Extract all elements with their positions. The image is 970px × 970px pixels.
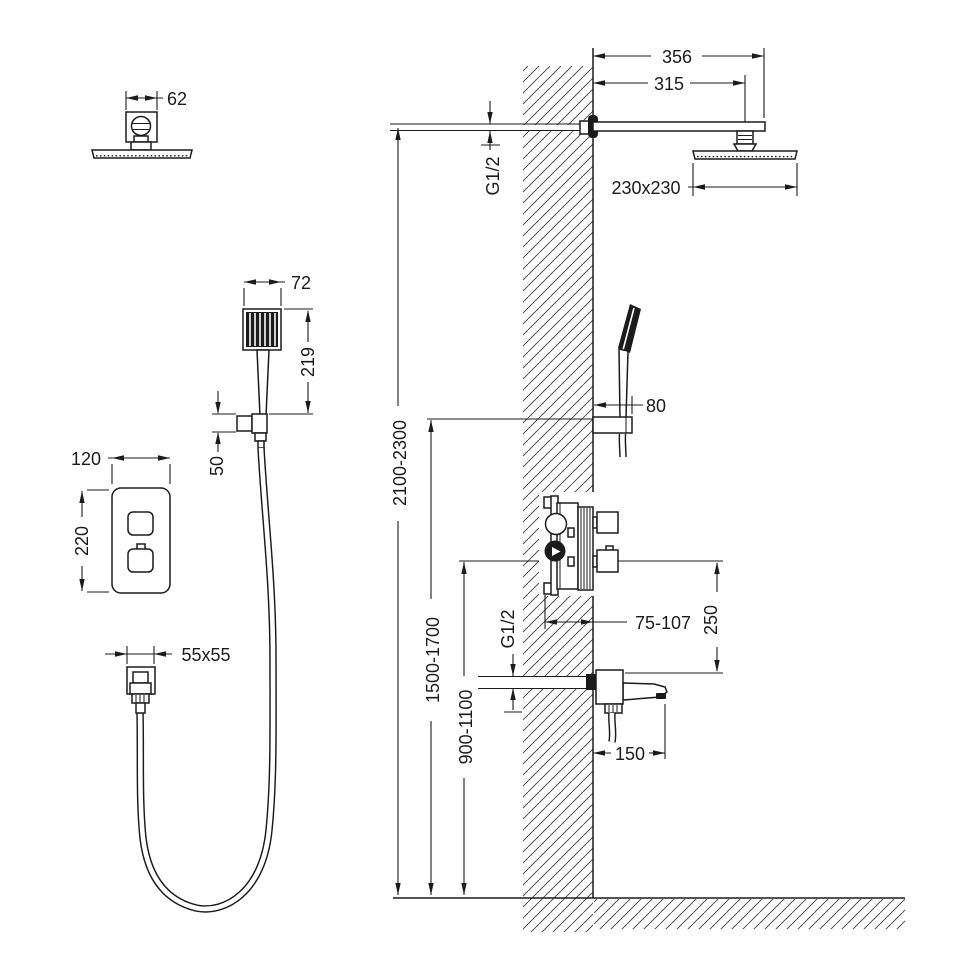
- installation-diagram: 2100-2300 1500-1700 900-1100 G1/2: [0, 0, 970, 970]
- handshower-length-label: 219: [298, 347, 318, 377]
- control-panel: [112, 488, 170, 593]
- dim-panel-height: 220: [72, 490, 109, 592]
- hand-shower-wall: [593, 304, 641, 457]
- mixer-depth-label: 75-107: [635, 613, 691, 633]
- outlet-size-label: 55x55: [181, 645, 230, 665]
- hand-shower-front: [237, 309, 281, 448]
- shower-arm: [580, 115, 765, 151]
- tub-spout: [586, 670, 667, 742]
- thread-spout-label: G1/2: [498, 609, 518, 648]
- mixer-handle-top: [597, 512, 618, 533]
- height-head-label: 2100-2300: [390, 420, 410, 506]
- overhead-shower-front: [92, 112, 192, 158]
- dim-head-size: 230x230: [611, 163, 797, 198]
- dim-handshower-width: 72: [244, 273, 311, 306]
- arm-center-label: 315: [654, 74, 684, 94]
- mixer-cartridge: [546, 514, 567, 535]
- dim-spout-reach: 150: [593, 704, 665, 764]
- spout-reach-label: 150: [615, 744, 645, 764]
- dim-arm-center: 315: [593, 74, 745, 122]
- mixer-valve: [539, 492, 618, 596]
- dim-height-head: 2100-2300: [390, 128, 410, 895]
- overhead-shower-side: [693, 151, 797, 159]
- mixer-drop-label: 250: [701, 605, 721, 635]
- panel-width-label: 120: [71, 449, 101, 469]
- swivel-ball: [132, 117, 151, 136]
- wall-outlet: [127, 667, 155, 713]
- height-holder-label: 1500-1700: [423, 617, 443, 703]
- connector-width-label: 62: [167, 89, 187, 109]
- handshower-width-label: 72: [291, 273, 311, 293]
- panel-button-top: [128, 512, 153, 535]
- dim-holder-depth: 80: [594, 396, 666, 416]
- dim-connector-width: 62: [126, 89, 187, 110]
- height-mixer-label: 900-1100: [456, 690, 476, 765]
- dim-holder-span: 50: [207, 391, 236, 476]
- spout-supply: [478, 677, 587, 689]
- holder-span-label: 50: [207, 456, 227, 476]
- dim-outlet-size: 55x55: [105, 645, 231, 665]
- panel-height-label: 220: [72, 526, 92, 556]
- dim-thread-top: G1/2: [481, 101, 503, 196]
- panel-button-bottom: [128, 549, 153, 572]
- handshower-holder: [237, 416, 252, 431]
- dim-panel-width: 120: [71, 449, 170, 484]
- thread-top-label: G1/2: [483, 156, 503, 195]
- arm-total-label: 356: [662, 47, 692, 67]
- holder-depth-label: 80: [646, 396, 666, 416]
- mixer-handle-bottom: [597, 550, 618, 572]
- head-size-label: 230x230: [611, 178, 680, 198]
- aerator: [656, 693, 666, 699]
- dim-thread-spout: G1/2: [498, 609, 522, 712]
- hand-shower-head-side: [618, 304, 641, 353]
- ball-joint: [737, 131, 753, 144]
